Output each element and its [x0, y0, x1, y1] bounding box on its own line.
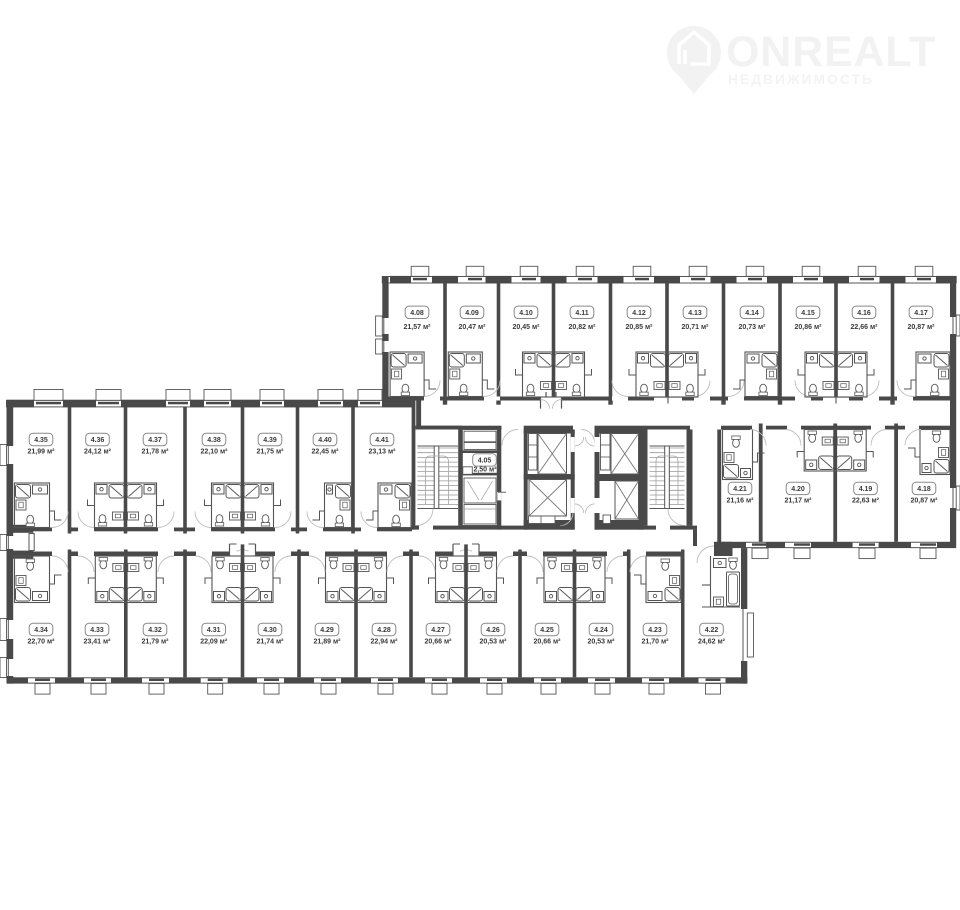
svg-text:4.13: 4.13 — [688, 310, 702, 317]
svg-text:2,50 м²: 2,50 м² — [473, 466, 497, 473]
svg-text:4.41: 4.41 — [375, 437, 389, 444]
svg-text:4.08: 4.08 — [410, 310, 424, 317]
svg-text:4.25: 4.25 — [540, 627, 554, 634]
svg-text:4.29: 4.29 — [320, 627, 334, 634]
svg-text:22,66 м²: 22,66 м² — [851, 324, 879, 331]
svg-text:21,17 м²: 21,17 м² — [785, 498, 813, 505]
svg-text:20,53 м²: 20,53 м² — [480, 639, 508, 646]
svg-text:4.15: 4.15 — [801, 310, 815, 317]
svg-text:4.20: 4.20 — [791, 486, 805, 493]
svg-text:НЕДВИЖИМОСТЬ: НЕДВИЖИМОСТЬ — [728, 72, 874, 87]
svg-text:4.26: 4.26 — [486, 627, 500, 634]
svg-text:24,62 м²: 24,62 м² — [698, 639, 726, 646]
svg-text:4.34: 4.34 — [34, 627, 48, 634]
svg-text:4.18: 4.18 — [917, 486, 931, 493]
svg-text:21,75 м²: 21,75 м² — [257, 449, 285, 456]
svg-text:4.38: 4.38 — [207, 437, 221, 444]
svg-text:4.16: 4.16 — [857, 310, 871, 317]
svg-text:4.14: 4.14 — [745, 310, 759, 317]
svg-text:4.19: 4.19 — [859, 486, 873, 493]
svg-text:22,45 м²: 22,45 м² — [312, 449, 340, 456]
svg-text:20,87 м²: 20,87 м² — [911, 498, 939, 505]
svg-text:4.31: 4.31 — [207, 627, 221, 634]
svg-text:22,09 м²: 22,09 м² — [200, 639, 228, 646]
svg-text:4.23: 4.23 — [648, 627, 662, 634]
svg-text:4.28: 4.28 — [377, 627, 391, 634]
svg-text:4.24: 4.24 — [594, 627, 608, 634]
svg-text:24,12 м²: 24,12 м² — [84, 449, 112, 456]
svg-text:20,73 м²: 20,73 м² — [739, 324, 767, 331]
svg-text:20,47 м²: 20,47 м² — [459, 324, 487, 331]
svg-text:20,85 м²: 20,85 м² — [626, 324, 654, 331]
svg-text:4.09: 4.09 — [465, 310, 479, 317]
svg-text:23,13 м²: 23,13 м² — [369, 449, 397, 456]
svg-text:4.33: 4.33 — [90, 627, 104, 634]
svg-text:4.39: 4.39 — [263, 437, 277, 444]
svg-text:4.37: 4.37 — [148, 437, 162, 444]
svg-text:21,78 м²: 21,78 м² — [142, 449, 170, 456]
svg-text:20,87 м²: 20,87 м² — [908, 324, 936, 331]
svg-text:21,70 м²: 21,70 м² — [642, 639, 670, 646]
svg-text:ONREALT: ONREALT — [726, 28, 936, 76]
svg-text:20,66 м²: 20,66 м² — [425, 639, 453, 646]
svg-text:21,79 м²: 21,79 м² — [142, 639, 170, 646]
svg-text:22,94 м²: 22,94 м² — [371, 639, 399, 646]
svg-text:4.10: 4.10 — [519, 310, 533, 317]
svg-text:22,63 м²: 22,63 м² — [852, 498, 880, 505]
svg-text:4.11: 4.11 — [575, 310, 588, 317]
svg-text:23,41 м²: 23,41 м² — [84, 639, 112, 646]
svg-text:20,71 м²: 20,71 м² — [682, 324, 710, 331]
svg-text:21,89 м²: 21,89 м² — [314, 639, 342, 646]
svg-text:4.21: 4.21 — [733, 486, 747, 493]
svg-text:4.22: 4.22 — [705, 627, 719, 634]
svg-text:4.30: 4.30 — [263, 627, 277, 634]
svg-text:22,70 м²: 22,70 м² — [28, 639, 56, 646]
svg-text:20,45 м²: 20,45 м² — [513, 324, 541, 331]
svg-text:20,66 м²: 20,66 м² — [534, 639, 562, 646]
svg-text:4.40: 4.40 — [318, 437, 332, 444]
svg-text:4.35: 4.35 — [34, 437, 48, 444]
svg-text:4.36: 4.36 — [91, 437, 105, 444]
svg-text:20,86 м²: 20,86 м² — [795, 324, 823, 331]
svg-text:21,74 м²: 21,74 м² — [257, 639, 285, 646]
svg-text:20,82 м²: 20,82 м² — [569, 324, 597, 331]
svg-text:21,16 м²: 21,16 м² — [727, 498, 755, 505]
svg-text:4.05: 4.05 — [478, 458, 492, 465]
svg-text:20,53 м²: 20,53 м² — [588, 639, 616, 646]
svg-text:21,99 м²: 21,99 м² — [28, 449, 56, 456]
svg-text:4.17: 4.17 — [914, 310, 928, 317]
svg-text:4.27: 4.27 — [431, 627, 445, 634]
svg-text:22,10 м²: 22,10 м² — [201, 449, 229, 456]
svg-text:21,57 м²: 21,57 м² — [404, 324, 432, 331]
svg-text:4.12: 4.12 — [632, 310, 646, 317]
svg-text:4.32: 4.32 — [148, 627, 162, 634]
